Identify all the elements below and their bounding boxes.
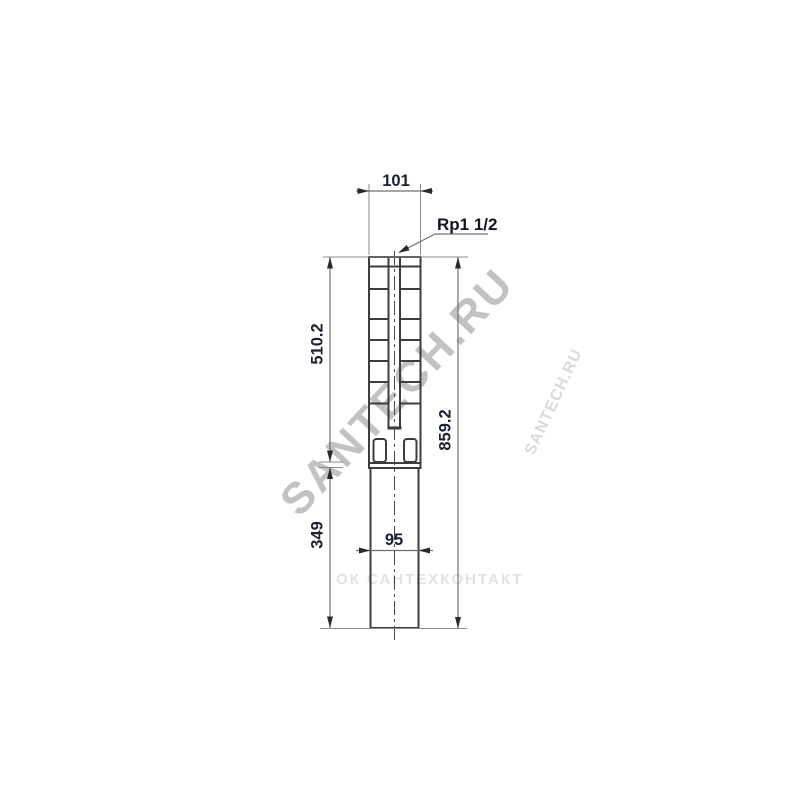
dim-upper-length-label: 510.2: [309, 323, 327, 364]
watermark-main-text: SANTECH.RU: [271, 259, 524, 525]
dimension-motor-width: 95: [356, 531, 433, 554]
watermark-secondary-text: SANTECH.RU: [522, 346, 586, 457]
dim-top-width-label: 101: [382, 172, 410, 190]
intake-port-right: [404, 439, 417, 462]
dim-motor-width-label: 95: [385, 531, 403, 549]
dim-total-length-label: 859.2: [437, 409, 455, 450]
dim-lower-length-label: 349: [309, 521, 327, 549]
connection-callout: Rp1 1/2: [397, 215, 498, 256]
pump-dimension-drawing: SANTECH.RU SANTECH.RU ОК САНТЕХКОНТАКТ: [0, 0, 800, 800]
connection-label: Rp1 1/2: [437, 215, 497, 234]
watermark-horizontal-text: ОК САНТЕХКОНТАКТ: [336, 571, 524, 588]
dimension-top-width: 101: [356, 172, 433, 194]
drawing-canvas: SANTECH.RU SANTECH.RU ОК САНТЕХКОНТАКТ: [0, 0, 800, 800]
